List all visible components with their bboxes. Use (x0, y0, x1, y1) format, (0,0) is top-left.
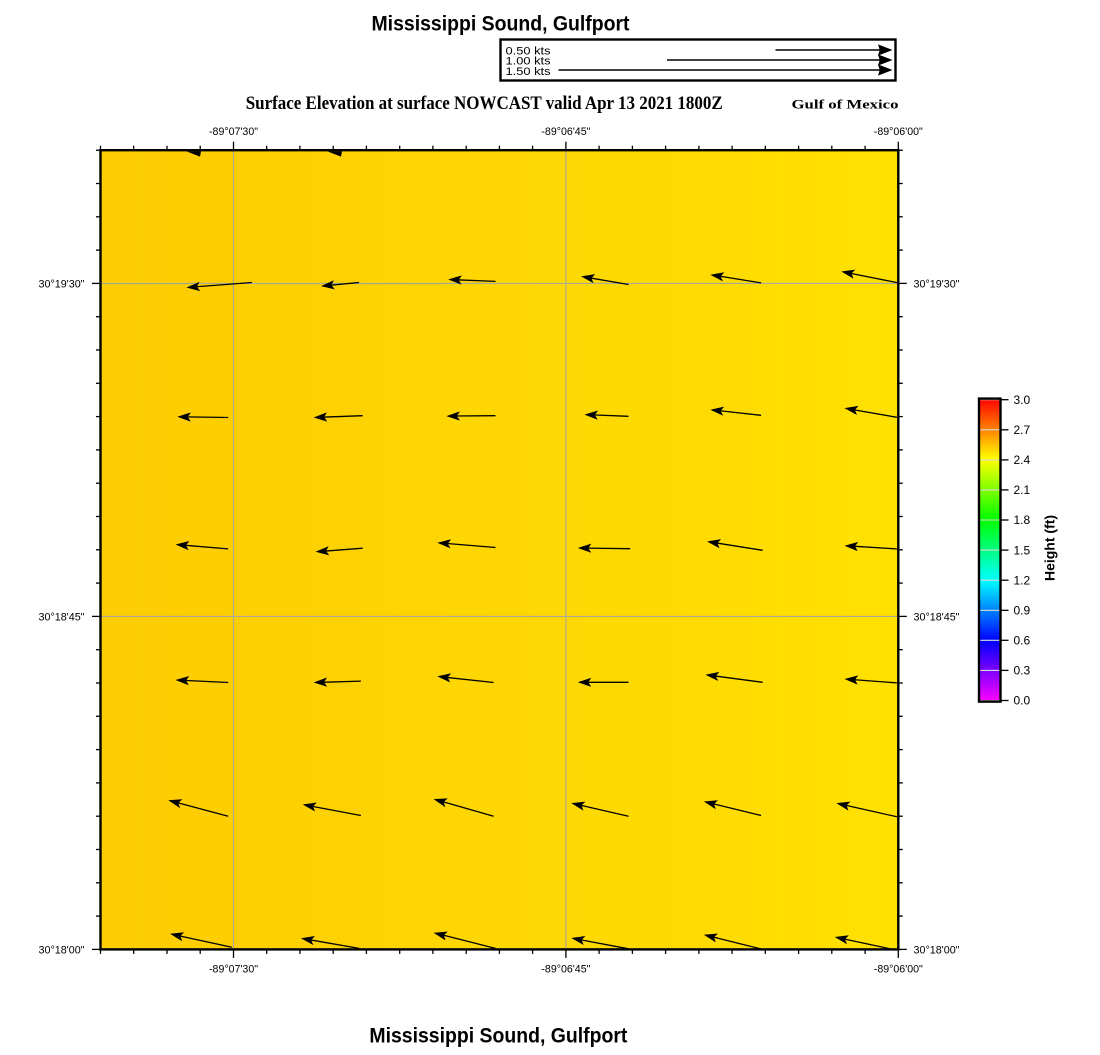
svg-text:0.6: 0.6 (1014, 634, 1031, 648)
svg-text:2.4: 2.4 (1014, 453, 1031, 467)
svg-text:1.5: 1.5 (1014, 543, 1031, 557)
svg-text:1.50 kts: 1.50 kts (506, 66, 552, 78)
svg-text:-89°07'30": -89°07'30" (209, 126, 258, 138)
svg-text:2.1: 2.1 (1014, 483, 1031, 497)
svg-text:30°18'00": 30°18'00" (39, 944, 85, 956)
svg-text:-89°06'00": -89°06'00" (874, 126, 923, 138)
svg-text:-89°07'30": -89°07'30" (209, 964, 258, 976)
svg-text:1.2: 1.2 (1014, 573, 1031, 587)
svg-text:Gulf of Mexico: Gulf of Mexico (792, 98, 899, 112)
svg-text:30°18'45": 30°18'45" (914, 611, 960, 623)
svg-text:1.8: 1.8 (1014, 513, 1031, 527)
svg-text:0.9: 0.9 (1014, 604, 1031, 618)
svg-text:-89°06'00": -89°06'00" (874, 964, 923, 976)
svg-text:-89°06'45": -89°06'45" (541, 964, 590, 976)
svg-text:Mississippi Sound, Gulfport: Mississippi Sound, Gulfport (372, 13, 630, 36)
svg-text:3.0: 3.0 (1014, 393, 1031, 407)
svg-text:30°18'45": 30°18'45" (39, 611, 85, 623)
svg-text:Surface Elevation at surface N: Surface Elevation at surface NOWCAST val… (246, 93, 723, 114)
svg-text:0.3: 0.3 (1014, 664, 1031, 678)
svg-text:Mississippi Sound, Gulfport: Mississippi Sound, Gulfport (369, 1025, 627, 1048)
svg-text:-89°06'45": -89°06'45" (541, 126, 590, 138)
svg-text:Height (ft): Height (ft) (1042, 515, 1058, 581)
svg-text:30°18'00": 30°18'00" (914, 944, 960, 956)
svg-text:2.7: 2.7 (1014, 423, 1031, 437)
svg-text:30°19'30": 30°19'30" (39, 278, 85, 290)
svg-text:0.0: 0.0 (1014, 694, 1031, 708)
svg-text:30°19'30": 30°19'30" (914, 278, 960, 290)
